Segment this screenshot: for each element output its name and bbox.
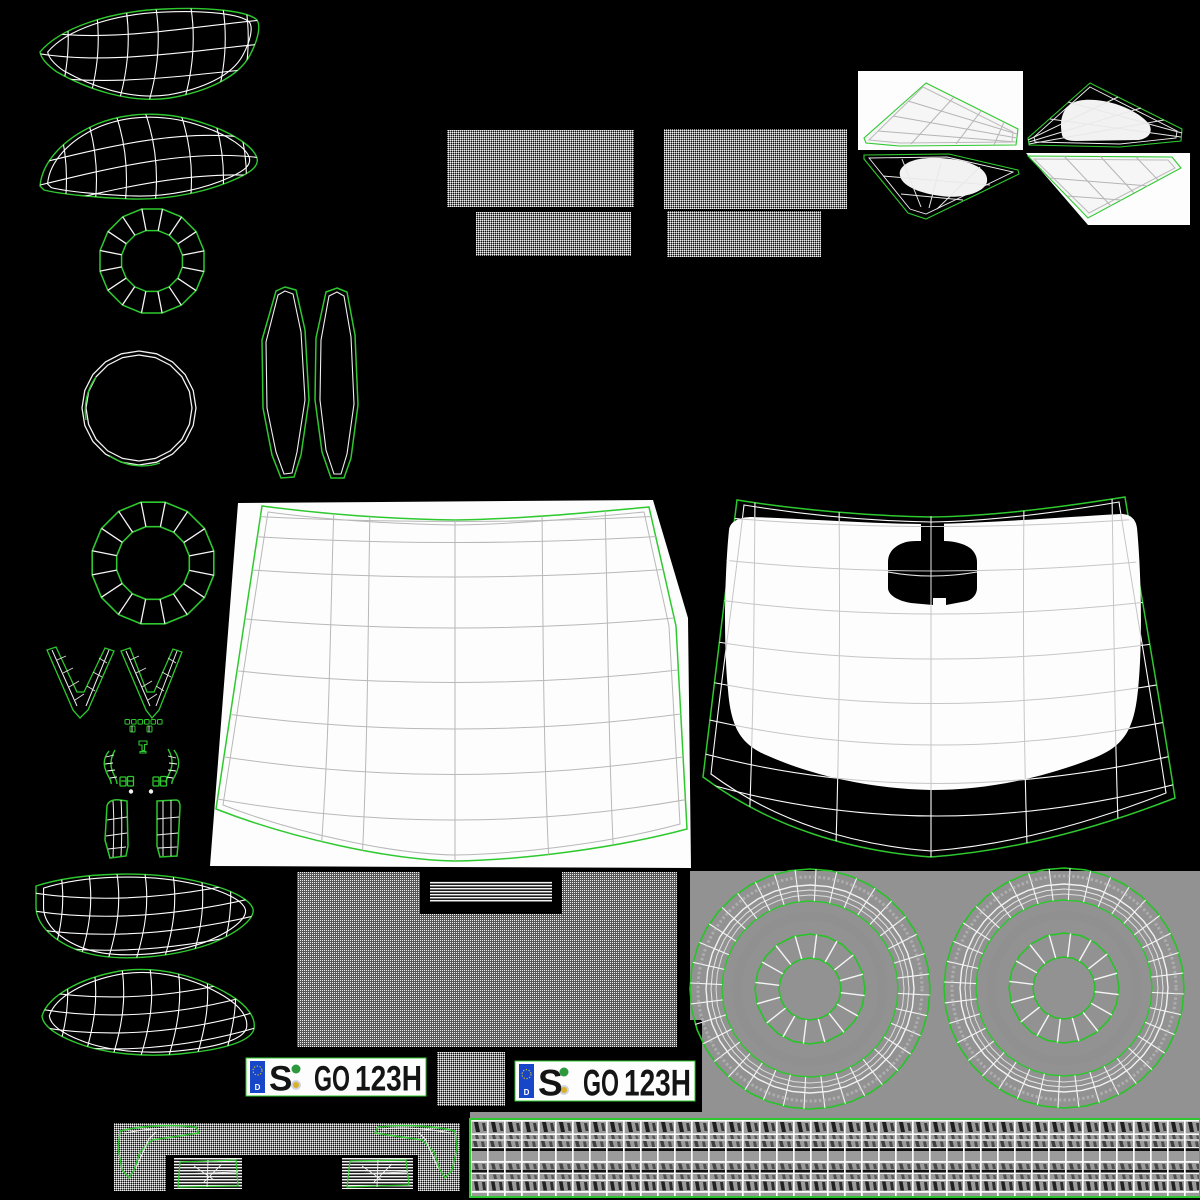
svg-text:S: S [538,1062,563,1103]
svg-text:D: D [524,1088,530,1097]
svg-text:D: D [255,1083,261,1092]
svg-text:S: S [269,1060,292,1099]
svg-text:123H: 123H [355,1060,422,1099]
svg-text:GO: GO [583,1062,619,1103]
svg-text:GO: GO [314,1060,350,1099]
svg-text:123H: 123H [624,1062,691,1103]
